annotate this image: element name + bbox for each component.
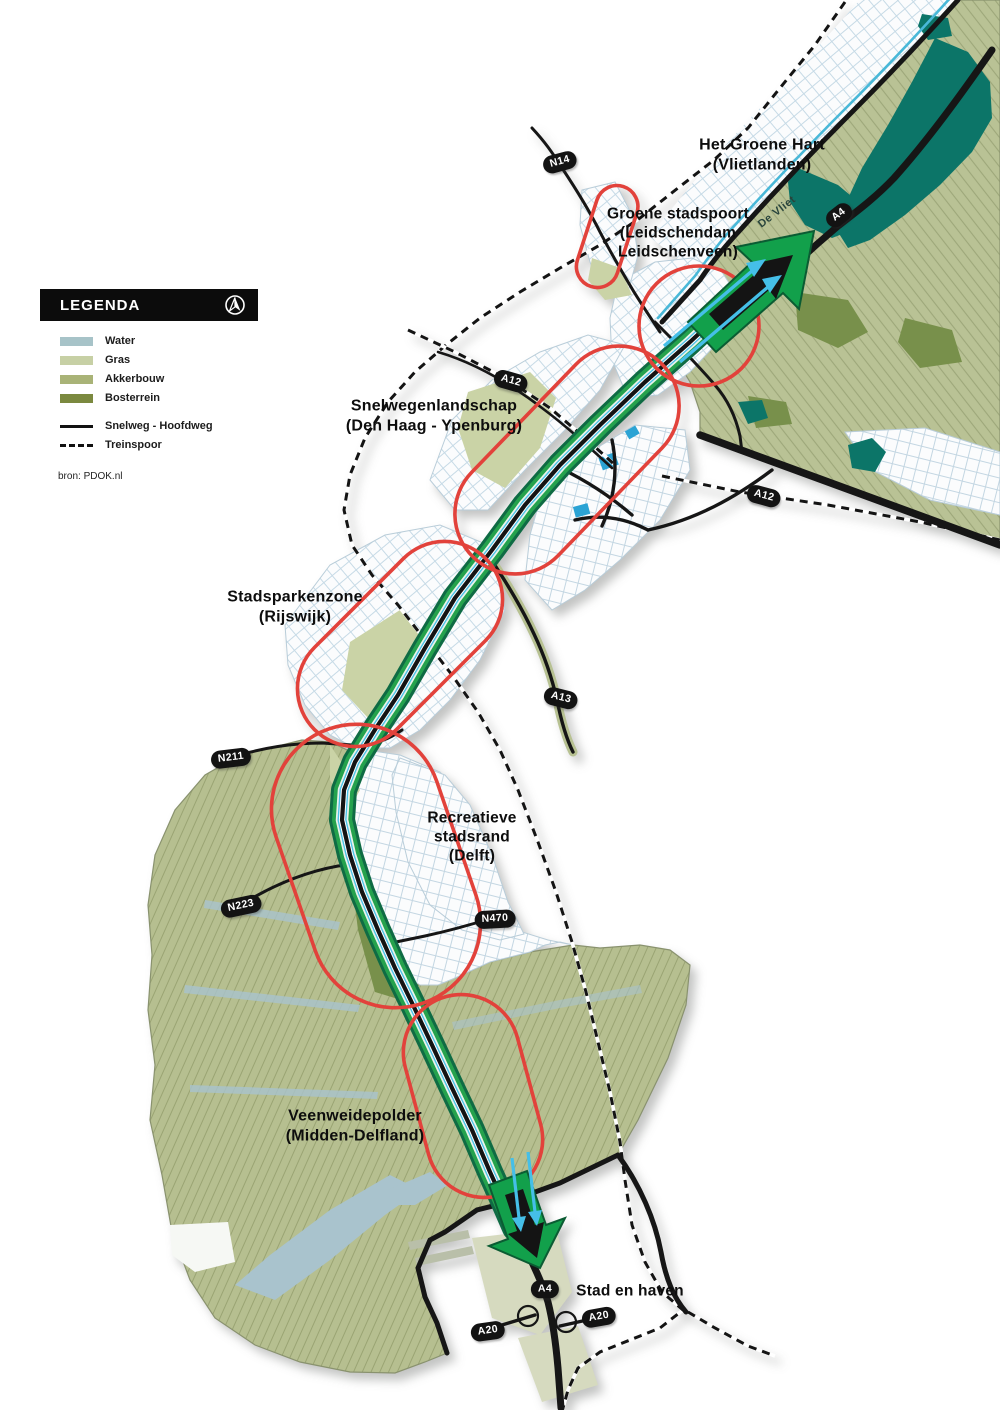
map-poster: Het Groene Hart (Vlietlanden) Groene sta… bbox=[0, 0, 1000, 1410]
label-groene-hart: Het Groene Hart (Vlietlanden) bbox=[699, 135, 825, 174]
legend-title: LEGENDA bbox=[60, 297, 140, 314]
akkerbouw-swatch bbox=[60, 375, 93, 384]
legend-item-akkerbouw: Akkerbouw bbox=[60, 373, 258, 385]
label-stad-en-haven: Stad en haven bbox=[576, 1283, 684, 1302]
akkerbouw-label: Akkerbouw bbox=[105, 373, 164, 385]
legend-item-bosterrein: Bosterrein bbox=[60, 392, 258, 404]
water-swatch bbox=[60, 337, 93, 346]
bosterrein-swatch bbox=[60, 394, 93, 403]
label-recreatieve-stadsrand: Recreatieve stadsrand (Delft) bbox=[427, 810, 516, 867]
gras-label: Gras bbox=[105, 354, 130, 366]
treinspoor-line-sample bbox=[60, 444, 93, 447]
gras-swatch bbox=[60, 356, 93, 365]
north-arrow-icon bbox=[224, 294, 246, 316]
label-stadsparkenzone: Stadsparkenzone (Rijswijk) bbox=[227, 587, 362, 626]
legend-item-water: Water bbox=[60, 335, 258, 347]
legend-source: bron: PDOK.nl bbox=[58, 471, 258, 482]
label-snelwegenlandschap: Snelwegenlandschap (Den Haag - Ypenburg) bbox=[346, 396, 522, 435]
legend-item-gras: Gras bbox=[60, 354, 258, 366]
treinspoor-label: Treinspoor bbox=[105, 439, 162, 451]
legend-line-treinspoor: Treinspoor bbox=[60, 439, 258, 451]
label-groene-stadspoort: Groene stadspoort (Leidschendam Leidsche… bbox=[607, 206, 749, 263]
snelweg-label: Snelweg - Hoofdweg bbox=[105, 420, 213, 432]
badge-a4-south: A4 bbox=[531, 1280, 559, 1298]
legend-items: Water Gras Akkerbouw Bosterrein bbox=[60, 335, 258, 404]
snelweg-line-sample bbox=[60, 425, 93, 428]
legend-lines: Snelweg - Hoofdweg Treinspoor bbox=[60, 420, 258, 451]
legend-header: LEGENDA bbox=[40, 289, 258, 321]
legend-line-snelweg: Snelweg - Hoofdweg bbox=[60, 420, 258, 432]
legend-panel: LEGENDA Water Gras Akkerbouw Bosterrein … bbox=[40, 289, 258, 482]
badge-n470: N470 bbox=[474, 909, 516, 929]
water-label: Water bbox=[105, 335, 135, 347]
bosterrein-label: Bosterrein bbox=[105, 392, 160, 404]
label-veenweidepolder: Veenweidepolder (Midden-Delfland) bbox=[286, 1106, 425, 1145]
